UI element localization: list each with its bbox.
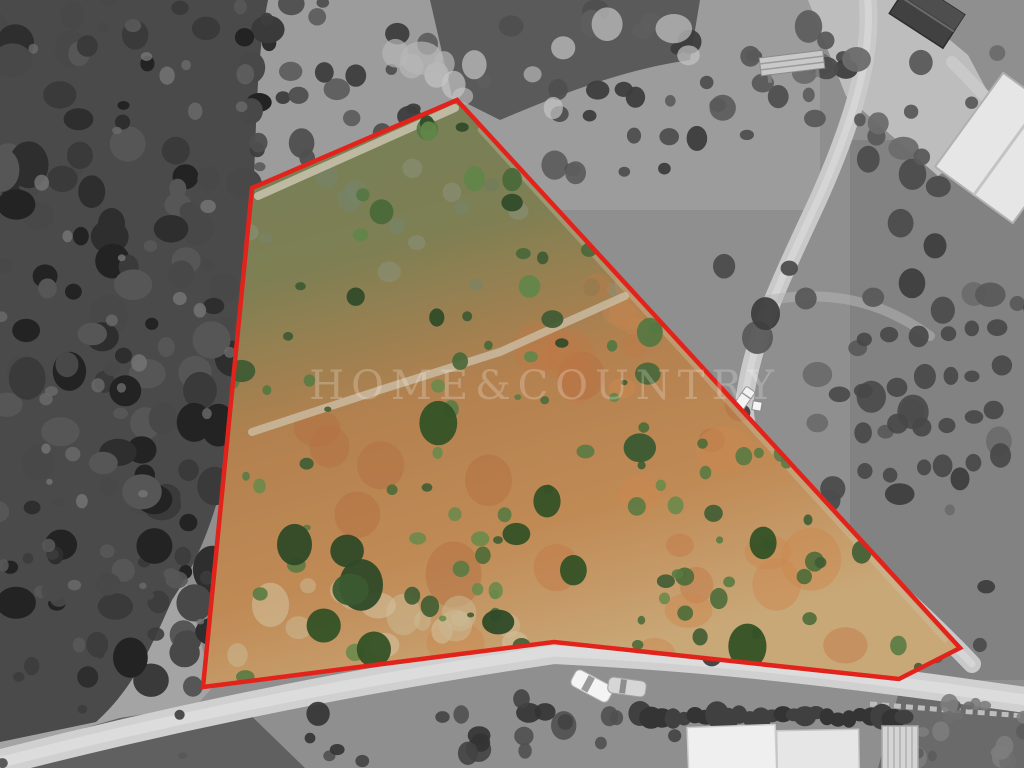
texture-blob [456,123,469,132]
texture-blob [42,539,55,552]
texture-blob [192,17,220,41]
texture-blob [941,326,957,341]
texture-blob [357,441,404,489]
texture-blob [78,705,88,714]
texture-blob [965,97,978,109]
texture-blob [356,188,369,201]
texture-blob [965,321,979,337]
texture-blob [928,751,937,762]
texture-blob [96,573,121,596]
texture-blob [672,569,684,578]
texture-blob [462,50,487,79]
texture-blob [38,278,57,298]
texture-blob [615,82,633,97]
texture-blob [389,217,405,234]
texture-blob [179,514,197,531]
texture-blob [236,101,248,112]
texture-blob [991,745,1010,760]
texture-blob [117,383,126,393]
texture-blob [862,288,884,307]
texture-blob [99,477,118,495]
texture-blob [159,67,174,85]
texture-blob [558,714,573,730]
texture-blob [13,672,24,682]
texture-blob [806,414,828,433]
texture-blob [894,710,913,724]
texture-blob [100,544,115,558]
texture-blob [984,401,1004,420]
texture-blob [795,288,817,310]
texture-blob [421,596,439,618]
texture-blob [638,461,646,469]
texture-blob [797,569,812,584]
texture-blob [41,417,79,446]
texture-blob [65,284,82,300]
texture-blob [260,13,273,27]
texture-blob [628,497,646,516]
texture-blob [168,261,194,289]
texture-blob [854,384,873,398]
texture-blob [890,636,907,656]
texture-blob [60,660,79,675]
texture-blob [656,480,666,491]
texture-blob [904,105,918,119]
texture-blob [973,638,987,652]
texture-blob [943,711,955,723]
texture-blob [173,292,187,305]
texture-blob [227,643,247,667]
texture-blob [857,463,872,479]
texture-blob [555,338,568,348]
texture-blob [183,676,203,697]
texture-blob [624,433,656,462]
texture-blob [502,168,522,191]
texture-blob [453,705,469,723]
texture-blob [408,235,426,250]
texture-blob [657,574,675,588]
warehouse-roof-left [687,724,777,768]
texture-blob [709,98,726,112]
texture-blob [964,702,975,710]
texture-blob [89,452,118,474]
texture-blob [402,159,422,178]
texture-blob [472,583,483,595]
texture-blob [56,352,79,377]
texture-blob [499,15,524,36]
texture-blob [804,514,813,525]
texture-blob [197,167,219,192]
texture-blob [409,532,426,544]
texture-blob [541,151,568,180]
texture-blob [194,303,207,318]
texture-blob [471,531,489,546]
texture-blob [288,87,308,104]
texture-blob [306,702,329,726]
texture-blob [815,557,827,568]
texture-blob [330,535,364,568]
texture-blob [854,422,872,443]
texture-blob [665,95,676,107]
texture-blob [700,466,712,480]
texture-blob [15,651,27,660]
texture-blob [370,199,394,224]
texture-blob [355,755,369,767]
aerial-photo-canvas: HOME&COUNTRY [0,0,1024,768]
texture-blob [178,752,187,759]
texture-blob [458,742,478,765]
texture-blob [514,727,533,746]
texture-blob [175,547,192,566]
texture-blob [202,408,212,419]
texture-blob [817,32,834,50]
texture-blob [516,248,531,259]
texture-blob [62,230,72,242]
texture-blob [913,149,930,166]
texture-blob [677,606,693,621]
texture-blob [632,640,643,650]
texture-blob [73,637,86,652]
texture-blob [992,355,1012,375]
texture-blob [188,103,202,120]
texture-blob [448,507,461,521]
texture-blob [315,62,334,83]
watermark-text: HOME&COUNTRY [309,363,781,409]
texture-blob [387,484,398,495]
texture-blob [335,491,381,537]
texture-blob [803,88,815,103]
texture-blob [118,254,126,261]
texture-blob [607,340,617,352]
texture-blob [124,613,147,632]
texture-blob [68,580,81,591]
texture-blob [503,523,531,545]
texture-blob [171,1,188,15]
texture-blob [716,536,723,543]
texture-blob [149,403,178,435]
texture-blob [169,179,186,198]
texture-blob [912,418,931,437]
texture-blob [610,710,623,725]
texture-blob [462,311,472,321]
texture-blob [112,127,122,134]
texture-blob [24,501,41,515]
texture-blob [106,315,118,327]
texture-blob [131,354,147,371]
texture-blob [12,319,40,342]
texture-blob [345,64,366,86]
texture-blob [945,504,955,515]
texture-blob [938,418,955,433]
texture-blob [52,696,70,714]
texture-blob [668,729,681,742]
texture-blob [200,200,216,213]
texture-blob [489,582,503,599]
texture-blob [23,553,34,564]
texture-blob [638,616,646,625]
texture-blob [524,66,542,82]
texture-blob [259,233,273,244]
texture-blob [533,485,560,518]
texture-blob [842,47,871,72]
texture-blob [250,133,268,153]
texture-blob [750,527,777,560]
texture-blob [693,628,708,645]
texture-blob [103,361,120,376]
texture-blob [464,166,485,191]
texture-blob [300,458,314,470]
texture-blob [909,326,929,348]
texture-blob [592,7,623,41]
texture-blob [781,261,798,276]
texture-blob [47,166,78,192]
texture-blob [857,146,880,173]
texture-blob [60,1,84,29]
texture-blob [975,283,1006,307]
texture-blob [469,279,483,291]
texture-blob [138,490,148,497]
texture-blob [139,583,146,590]
texture-blob [659,128,679,145]
texture-blob [465,455,512,507]
texture-blob [43,81,76,108]
texture-blob [987,319,1007,336]
texture-blob [435,711,449,723]
texture-blob [454,201,469,216]
texture-blob [44,658,56,667]
texture-blob [262,385,271,395]
texture-blob [201,259,215,270]
texture-blob [113,408,128,419]
texture-blob [118,101,130,110]
texture-blob [888,209,914,238]
texture-blob [76,494,88,508]
texture-blob [136,528,172,564]
texture-blob [91,378,104,392]
texture-blob [595,737,607,750]
texture-blob [237,64,255,84]
texture-blob [78,323,107,346]
texture-blob [854,113,866,126]
texture-blob [277,524,312,565]
texture-blob [659,593,670,605]
texture-blob [283,332,293,341]
texture-blob [147,627,164,640]
texture-blob [909,50,933,75]
texture-blob [658,163,671,175]
texture-blob [300,578,316,593]
texture-blob [823,627,867,663]
texture-blob [242,472,250,481]
texture-blob [713,254,735,279]
texture-blob [253,587,268,600]
texture-blob [537,252,548,265]
texture-blob [353,229,368,242]
texture-blob [885,483,915,505]
texture-blob [154,215,189,243]
texture-blob [78,175,105,208]
texture-blob [429,308,444,326]
texture-blob [803,362,833,387]
texture-blob [656,14,693,43]
texture-blob [513,689,530,708]
texture-blob [498,507,512,522]
texture-blob [723,577,735,588]
texture-blob [158,337,175,357]
texture-blob [475,547,491,565]
texture-blob [52,497,64,506]
texture-blob [482,610,514,635]
texture-blob [343,110,360,126]
texture-blob [113,638,148,678]
texture-blob [577,445,595,459]
texture-blob [524,351,538,362]
texture-blob [235,28,254,46]
texture-blob [308,8,326,25]
texture-blob [582,274,612,299]
texture-blob [420,121,437,140]
texture-blob [619,167,631,177]
texture-blob [914,364,936,389]
texture-blob [638,422,649,432]
texture-blob [979,701,991,710]
texture-blob [857,333,872,347]
texture-blob [804,110,826,128]
texture-blob [183,372,217,409]
texture-blob [254,162,265,171]
texture-blob [989,45,1005,61]
texture-blob [666,534,694,557]
texture-blob [176,584,212,621]
texture-blob [933,454,953,477]
texture-blob [97,22,110,32]
texture-blob [932,721,949,741]
texture-blob [990,443,1011,468]
texture-blob [977,580,995,593]
texture-blob [700,76,714,89]
texture-blob [64,108,94,130]
texture-blob [443,183,462,203]
texture-blob [162,137,190,165]
texture-blob [184,634,198,651]
texture-blob [467,613,474,618]
texture-blob [73,227,89,246]
texture-blob [586,81,609,100]
texture-blob [565,161,586,184]
texture-blob [926,176,951,197]
texture-blob [880,327,898,342]
texture-blob [125,19,141,32]
texture-blob [484,179,499,192]
texture-blob [751,297,780,330]
texture-blob [114,269,152,300]
texture-blob [740,130,754,140]
texture-blob [710,588,728,609]
texture-blob [404,587,420,605]
texture-blob [944,367,959,385]
texture-blob [330,744,345,755]
texture-blob [295,282,306,290]
texture-blob [197,619,204,625]
texture-blob [501,194,522,212]
texture-blob [279,62,302,81]
texture-blob [883,468,898,483]
texture-blob [668,496,684,514]
texture-blob [347,288,365,306]
texture-blob [442,71,466,99]
texture-blob [535,703,556,721]
texture-blob [484,341,493,350]
texture-blob [899,268,926,298]
texture-blob [754,448,764,458]
texture-blob [145,592,154,600]
texture-blob [519,275,541,298]
texture-blob [39,393,52,405]
texture-blob [289,128,315,158]
texture-blob [46,479,52,485]
texture-blob [829,387,851,403]
texture-blob [175,710,185,720]
texture-blob [541,310,563,328]
texture-blob [868,112,889,134]
texture-blob [77,666,98,687]
texture-blob [77,35,98,57]
texture-blob [560,555,587,585]
texture-blob [399,54,423,79]
texture-blob [802,612,816,625]
texture-blob [687,126,708,151]
texture-blob [181,60,191,70]
texture-blob [964,371,979,383]
texture-blob [468,726,491,745]
texture-blob [697,439,708,449]
texture-blob [9,357,46,400]
texture-blob [924,233,947,258]
texture-blob [67,142,93,169]
texture-blob [28,44,38,54]
texture-blob [65,447,80,461]
texture-blob [433,447,443,459]
texture-blob [98,208,125,239]
texture-blob [583,110,597,122]
texture-blob [141,52,152,61]
texture-blob [544,97,563,119]
texture-blob [422,483,433,491]
texture-blob [178,459,199,481]
texture-blob [887,414,908,434]
texture-blob [966,454,982,472]
texture-blob [115,348,132,364]
warehouse-roof-right [777,729,860,768]
texture-blob [704,505,723,522]
texture-blob [632,22,652,39]
texture-blob [548,79,567,100]
texture-blob [931,297,955,324]
texture-blob [332,574,368,606]
texture-blob [50,591,68,607]
texture-blob [41,444,50,454]
texture-blob [378,261,401,282]
texture-blob [276,91,291,104]
texture-blob [917,459,931,475]
texture-blob [627,128,641,144]
texture-blob [493,536,503,544]
texture-blob [439,616,446,622]
texture-blob [305,733,316,744]
texture-blob [145,318,158,330]
texture-blob [735,447,752,465]
texture-blob [34,175,49,191]
ribbed-roof-small [882,726,918,768]
